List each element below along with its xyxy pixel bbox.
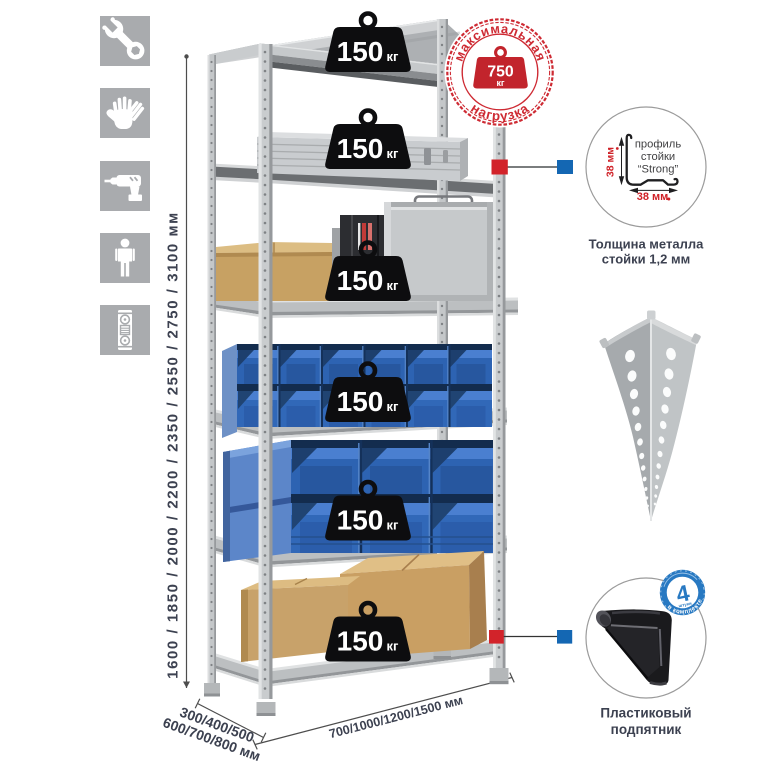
svg-text:стойки 1,2 мм: стойки 1,2 мм (602, 252, 690, 267)
svg-text:1600 / 1850 / 2000 / 2200 / 23: 1600 / 1850 / 2000 / 2200 / 2350 / 2550 … (165, 211, 182, 679)
svg-text:подпятник: подпятник (611, 722, 682, 737)
svg-text:38 мм: 38 мм (637, 191, 669, 203)
svg-text:стойки: стойки (641, 151, 675, 163)
svg-text:Толщина металла: Толщина металла (589, 237, 704, 252)
svg-text:38 мм: 38 мм (605, 147, 617, 177)
svg-text:кг: кг (496, 78, 504, 88)
svg-text:“Strong”: “Strong” (638, 164, 679, 176)
svg-text:профиль: профиль (635, 139, 681, 151)
svg-text:Пластиковый: Пластиковый (600, 706, 691, 721)
